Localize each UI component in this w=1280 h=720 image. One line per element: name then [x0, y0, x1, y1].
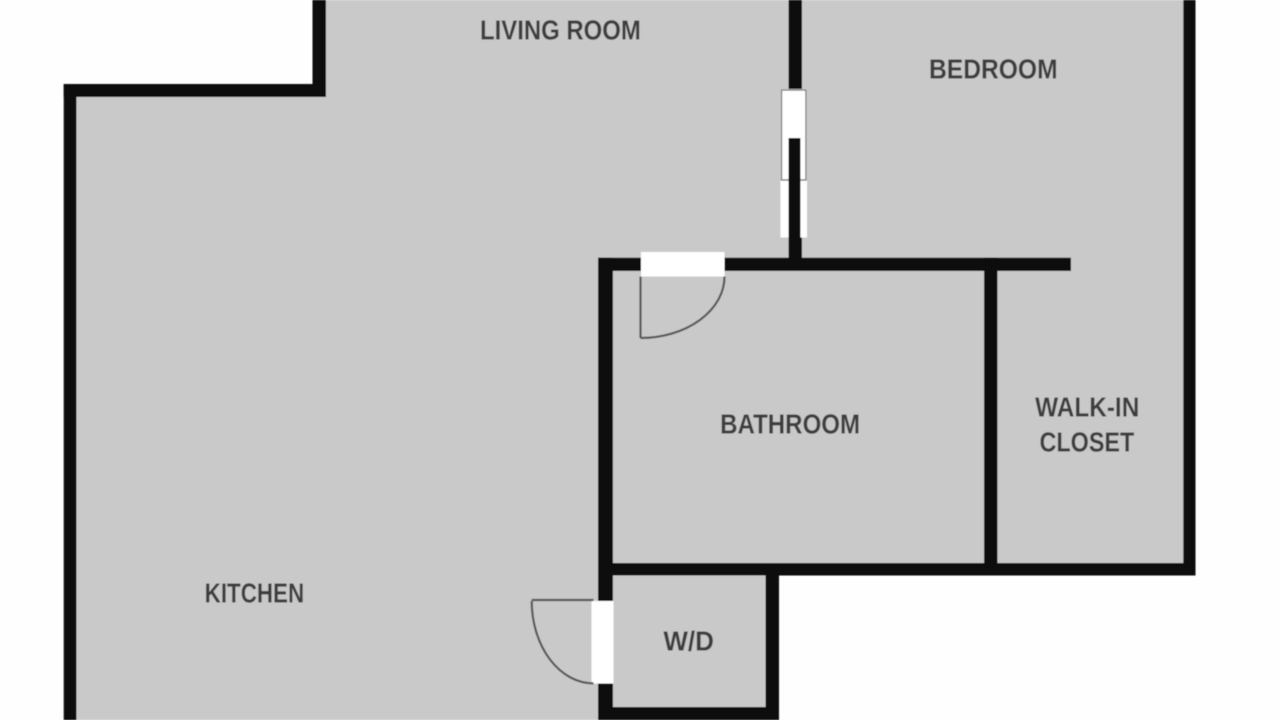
svg-text:W/D: W/D: [663, 625, 714, 656]
svg-text:CLOSET: CLOSET: [1040, 427, 1135, 457]
svg-text:BEDROOM: BEDROOM: [929, 53, 1058, 85]
svg-text:WALK-IN: WALK-IN: [1035, 391, 1139, 423]
svg-text:KITCHEN: KITCHEN: [205, 578, 305, 609]
svg-text:BATHROOM: BATHROOM: [720, 408, 860, 440]
svg-text:LIVING ROOM: LIVING ROOM: [480, 14, 641, 46]
